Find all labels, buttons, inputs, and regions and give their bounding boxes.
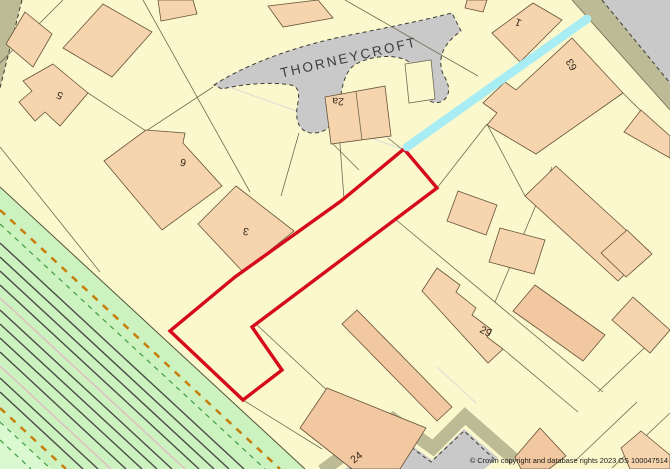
copyright-text: © Crown copyright and database rights 20… [470, 456, 668, 465]
outbuilding [405, 60, 435, 103]
house-label-2a: 2a [332, 95, 345, 108]
os-location-plan: THORNEYCROFT 5 6 3 2a 1 63 29 24 © Crown… [0, 0, 670, 469]
